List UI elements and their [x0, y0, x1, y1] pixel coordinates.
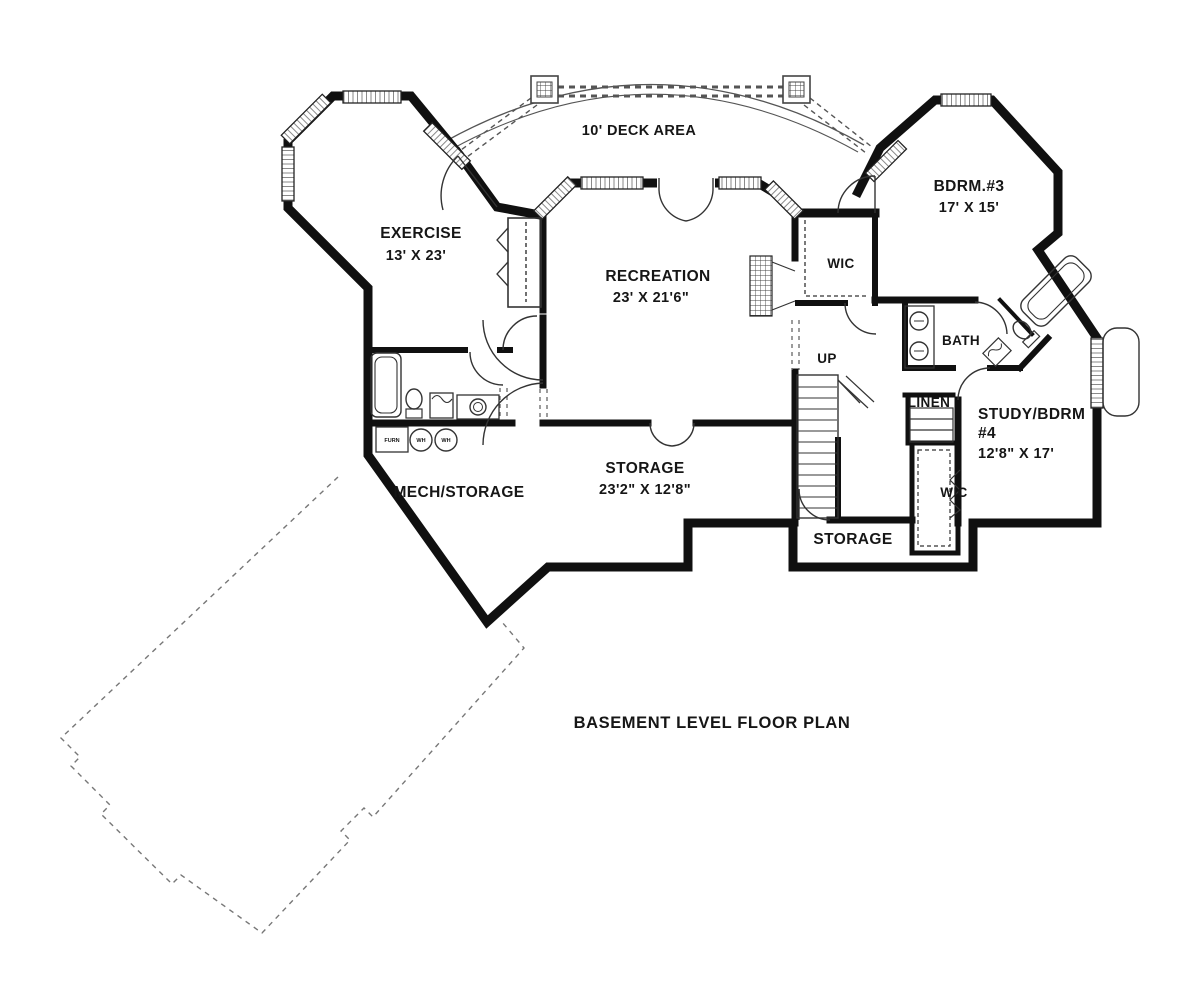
- door-arc: [845, 303, 876, 334]
- window: [941, 94, 991, 106]
- sink-bath2: [983, 338, 1011, 366]
- door-arc: [799, 489, 830, 520]
- window: [343, 91, 401, 103]
- stair-break-line: [840, 376, 874, 408]
- window: [534, 177, 576, 219]
- french-door-opening: [657, 175, 715, 191]
- exterior-walls: [288, 96, 1097, 622]
- room-label-storage-center: STORAGE: [605, 460, 684, 477]
- door-arc: [672, 423, 694, 446]
- floor-plan-canvas: 10' DECK AREA EXERCISE 13' X 23' RECREAT…: [0, 0, 1200, 1002]
- room-label-wic2: WIC: [940, 485, 967, 500]
- interior-walls: [368, 213, 1048, 553]
- floor-plan: 10' DECK AREA EXERCISE 13' X 23' RECREAT…: [0, 0, 1200, 1002]
- room-label-exercise: EXERCISE: [380, 225, 462, 242]
- deck-dashed-diagonal: [467, 105, 537, 157]
- deck-label: 10' DECK AREA: [582, 123, 697, 139]
- room-dims-study: 12'8" X 17': [978, 446, 1054, 462]
- washer: [457, 395, 499, 419]
- linen-shelves: [910, 408, 953, 442]
- room-label-bdrm3: BDRM.#3: [934, 178, 1005, 195]
- room-label-mech: MECH/STORAGE: [393, 484, 524, 501]
- laundry-sink: [430, 393, 453, 418]
- hall-closet: [497, 218, 541, 307]
- room-dims-bdrm3: 17' X 15': [939, 200, 999, 216]
- water-heater-label: WH: [441, 438, 450, 444]
- door-arc: [650, 423, 672, 446]
- deck-area: [446, 76, 872, 157]
- stair-treads: [798, 387, 837, 508]
- deck-dashed-diagonal: [804, 105, 866, 153]
- toilet-bath2: [1009, 317, 1039, 347]
- deck-dashed-diagonal: [461, 98, 531, 150]
- room-label-study-2: #4: [978, 425, 996, 442]
- door-arc: [503, 316, 537, 350]
- garage-outline-dashed: [61, 477, 524, 933]
- bathtub-left: [371, 353, 401, 417]
- door-arc: [470, 352, 503, 385]
- room-label-bath: BATH: [942, 333, 980, 348]
- room-label-study-1: STUDY/BDRM: [978, 406, 1085, 423]
- door-arc: [483, 383, 543, 445]
- water-heater-label: WH: [416, 438, 425, 444]
- door-leaf: [458, 156, 497, 207]
- deck-post: [531, 76, 558, 103]
- window: [281, 94, 330, 143]
- window-well: [1103, 328, 1139, 416]
- stairs-up-label: UP: [817, 351, 837, 366]
- toilet-left: [406, 389, 422, 418]
- room-dims-storage-center: 23'2" X 12'8": [599, 482, 691, 498]
- bath-vanity: [905, 306, 934, 368]
- window: [581, 177, 643, 189]
- fireplace: [750, 256, 795, 316]
- window: [719, 177, 761, 189]
- bifold-door: [497, 228, 508, 286]
- window: [282, 147, 294, 201]
- room-label-storage-right: STORAGE: [813, 531, 892, 548]
- room-label-linen: LINEN: [908, 395, 951, 410]
- room-label-wic1: WIC: [827, 256, 854, 271]
- window: [765, 181, 803, 219]
- window: [1091, 338, 1103, 408]
- door-arc: [975, 302, 1007, 334]
- room-label-recreation: RECREATION: [605, 268, 710, 285]
- room-dims-exercise: 13' X 23': [386, 248, 446, 264]
- door-arc: [659, 190, 686, 221]
- plan-title: BASEMENT LEVEL FLOOR PLAN: [574, 714, 851, 732]
- door-arc: [686, 190, 713, 221]
- door-arc: [958, 368, 990, 400]
- door-arc: [441, 156, 458, 210]
- deck-post: [783, 76, 810, 103]
- furnace-label: FURN: [384, 438, 399, 444]
- room-dims-recreation: 23' X 21'6": [613, 290, 689, 306]
